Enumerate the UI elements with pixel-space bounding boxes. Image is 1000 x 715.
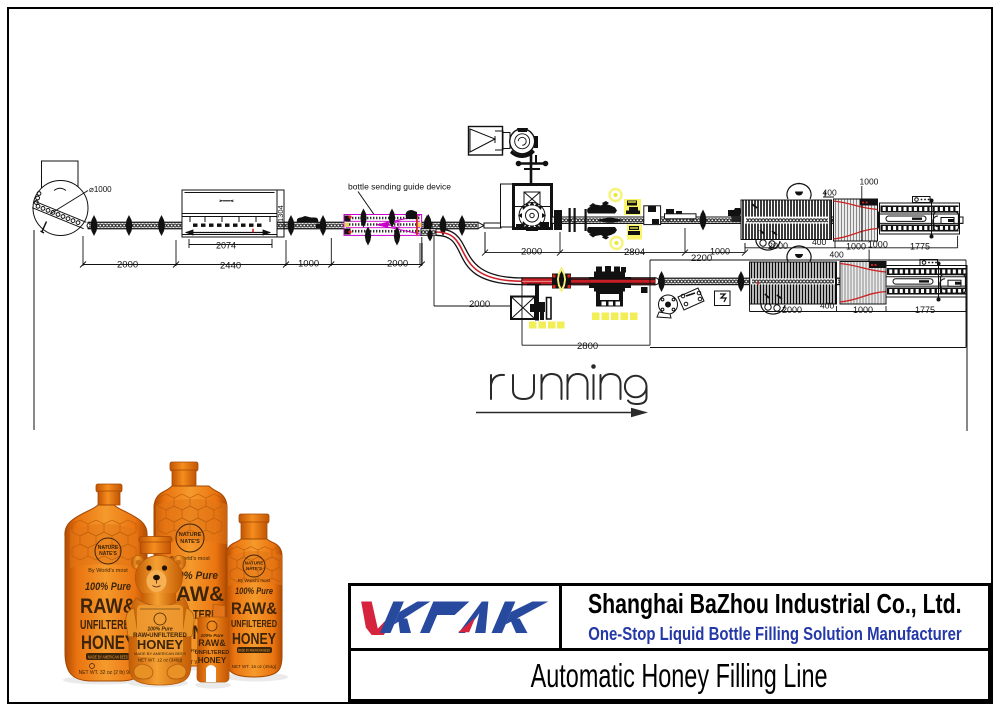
- svg-text:2800: 2800: [577, 341, 598, 352]
- svg-text:1000: 1000: [710, 247, 730, 257]
- svg-text:1000: 1000: [860, 177, 879, 187]
- svg-text:NATURE: NATURE: [179, 532, 202, 538]
- svg-text:UNFILTERED: UNFILTERED: [231, 618, 277, 630]
- svg-text:2074: 2074: [216, 241, 236, 251]
- svg-text:2200: 2200: [691, 253, 712, 264]
- svg-text:2000: 2000: [521, 247, 542, 258]
- svg-text:HONEY: HONEY: [198, 656, 227, 665]
- svg-text:100% Pure: 100% Pure: [147, 627, 173, 633]
- svg-text:MADE BY AMERICAN BEES: MADE BY AMERICAN BEES: [134, 651, 186, 656]
- svg-text:1304: 1304: [276, 205, 285, 222]
- svg-text:1775: 1775: [910, 242, 930, 252]
- svg-text:NATE'S: NATE'S: [99, 551, 117, 557]
- svg-text:100% Pure: 100% Pure: [85, 581, 131, 593]
- svg-text:1000: 1000: [846, 242, 866, 252]
- svg-text:RAW&: RAW&: [198, 638, 226, 648]
- svg-text:NATE'S: NATE'S: [180, 539, 200, 545]
- svg-text:2000: 2000: [469, 299, 490, 310]
- svg-text:400: 400: [812, 237, 826, 247]
- svg-text:By World's most: By World's most: [238, 578, 271, 583]
- svg-text:NATURE: NATURE: [245, 561, 263, 566]
- svg-text:1000: 1000: [853, 305, 873, 315]
- svg-text:2804: 2804: [624, 247, 645, 258]
- svg-text:1000: 1000: [868, 240, 888, 250]
- svg-text:100% Pure: 100% Pure: [235, 586, 273, 596]
- svg-text:HONEY: HONEY: [137, 637, 184, 652]
- svg-text:⌀1000: ⌀1000: [89, 185, 112, 194]
- svg-text:By World's most: By World's most: [88, 568, 128, 574]
- svg-text:400: 400: [820, 301, 834, 311]
- svg-text:1775: 1775: [915, 305, 935, 315]
- svg-text:NET WT. 16 oz (454g): NET WT. 16 oz (454g): [232, 664, 277, 669]
- svg-text:400: 400: [830, 250, 844, 260]
- svg-text:2440: 2440: [220, 261, 241, 272]
- svg-text:2000: 2000: [782, 305, 802, 315]
- svg-text:2000: 2000: [117, 260, 138, 271]
- svg-text:2000: 2000: [387, 259, 408, 270]
- svg-text:HONEY: HONEY: [232, 631, 277, 648]
- svg-text:NET WT. 32 oz (2 lb) 907g: NET WT. 32 oz (2 lb) 907g: [79, 670, 138, 676]
- svg-text:1000: 1000: [298, 259, 319, 270]
- svg-text:bottle sending guide device: bottle sending guide device: [348, 182, 451, 192]
- svg-text:NATE'S: NATE'S: [246, 566, 262, 571]
- svg-text:MADE BY AMERICAN BEES: MADE BY AMERICAN BEES: [238, 648, 270, 653]
- svg-text:NET WT. 12 oz (340g): NET WT. 12 oz (340g): [138, 658, 183, 663]
- svg-text:0% Pure: 0% Pure: [178, 570, 218, 582]
- svg-text:MADE BY AMERICAN BEES: MADE BY AMERICAN BEES: [88, 655, 128, 660]
- svg-text:400: 400: [823, 188, 837, 198]
- svg-text:HONEY: HONEY: [81, 633, 135, 654]
- svg-text:2000: 2000: [768, 241, 788, 251]
- svg-text:RAW&: RAW&: [231, 599, 277, 618]
